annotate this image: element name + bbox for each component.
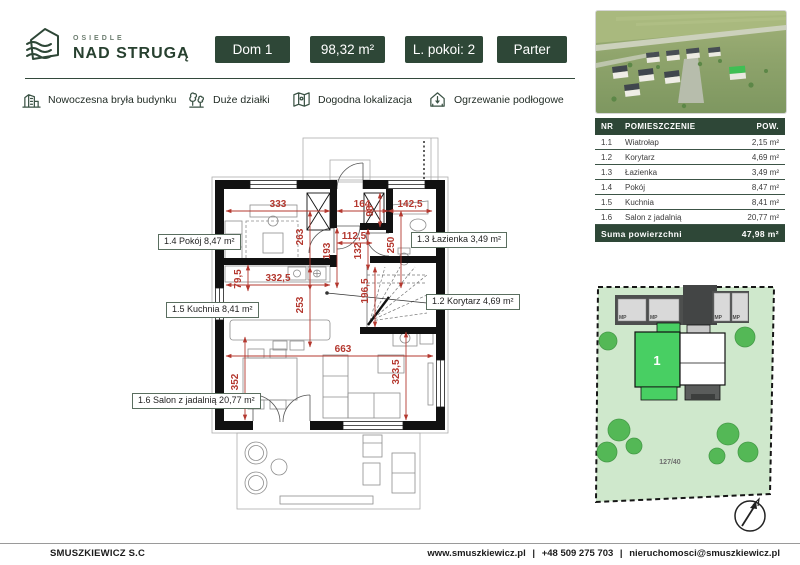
- footer-separator: |: [620, 548, 623, 559]
- floor-heating-icon: [428, 90, 447, 109]
- compass-icon: [735, 499, 765, 531]
- table-row: 1.5 Kuchnia 8,41 m²: [595, 195, 785, 210]
- plot-number: 127/40: [659, 459, 681, 466]
- cell-nr: 1.2: [601, 153, 625, 162]
- cell-pow: 8,41 m²: [752, 198, 779, 207]
- logo-text: OSIEDLE NAD STRUGĄ: [73, 35, 190, 63]
- house-number: 1: [653, 353, 660, 368]
- cell-pow: 3,49 m²: [752, 168, 779, 177]
- footer-phone-link[interactable]: +48 509 275 703: [542, 548, 614, 559]
- footer-company: SMUSZKIEWICZ S.C: [50, 548, 145, 559]
- cell-nr: 1.4: [601, 183, 625, 192]
- table-row: 1.6 Salon z jadalnią 20,77 m²: [595, 210, 785, 225]
- table-row: 1.3 Łazienka 3,49 m²: [595, 165, 785, 180]
- cell-name: Kuchnia: [625, 198, 752, 207]
- cell-name: Pokój: [625, 183, 752, 192]
- dim-label: 352: [230, 373, 241, 390]
- feature-label: Ogrzewanie podłogowe: [454, 94, 564, 106]
- aerial-photo-render: [596, 11, 786, 113]
- rooms-table-summary: Suma powierzchni 47,98 m²: [595, 225, 785, 242]
- feature-label: Nowoczesna bryła budynku: [48, 94, 176, 106]
- dim-label: 193: [322, 242, 333, 259]
- footer-email-link[interactable]: nieruchomosci@smuszkiewicz.pl: [629, 548, 780, 559]
- dim-label: 253: [295, 296, 306, 313]
- feature-label: Duże działki: [213, 94, 270, 106]
- cell-name: Wiatrołap: [625, 138, 752, 147]
- dim-label: 98: [365, 205, 376, 217]
- trees-icon: [187, 90, 206, 109]
- badge-room-count[interactable]: L. pokoi: 2: [405, 36, 483, 63]
- cell-nr: 1.3: [601, 168, 625, 177]
- col-pow: POW.: [757, 122, 780, 131]
- feature-large-plots: Duże działki: [187, 90, 270, 109]
- building-icon: [22, 90, 41, 109]
- feature-floor-heating: Ogrzewanie podłogowe: [428, 90, 564, 109]
- parking-label: MP: [733, 315, 741, 321]
- rooms-table: NR POMIESZCZENIE POW. 1.1 Wiatrołap 2,15…: [595, 118, 785, 242]
- aerial-photo: [595, 10, 787, 114]
- feature-label: Dogodna lokalizacja: [318, 94, 412, 106]
- footer-website-link[interactable]: www.smuszkiewicz.pl: [427, 548, 525, 559]
- room-label-lazienka: 1.3 Łazienka 3,49 m²: [411, 232, 507, 248]
- dim-label: 332,5: [265, 273, 290, 284]
- dim-label: 250: [386, 236, 397, 253]
- logo-subtitle: OSIEDLE: [73, 35, 190, 42]
- highlighted-house: [729, 66, 746, 80]
- header-divider: [25, 78, 575, 79]
- footer-divider: [0, 543, 800, 544]
- rooms-table-header: NR POMIESZCZENIE POW.: [595, 118, 785, 135]
- dim-label: 112,5: [342, 231, 367, 242]
- table-row: 1.1 Wiatrołap 2,15 m²: [595, 135, 785, 150]
- dim-label: 142,5: [397, 199, 422, 210]
- table-row: 1.2 Korytarz 4,69 m²: [595, 150, 785, 165]
- room-label-pokoj: 1.4 Pokój 8,47 m²: [158, 234, 241, 250]
- dim-label: 263: [295, 228, 306, 245]
- summary-value: 47,98 m²: [742, 229, 779, 239]
- cell-name: Korytarz: [625, 153, 752, 162]
- dim-label: 323,5: [391, 359, 402, 384]
- cell-nr: 1.5: [601, 198, 625, 207]
- cell-pow: 8,47 m²: [752, 183, 779, 192]
- dim-label: 196,5: [360, 278, 371, 303]
- cell-pow: 4,69 m²: [752, 153, 779, 162]
- badge-house-number[interactable]: Dom 1: [215, 36, 290, 63]
- footer-contacts: www.smuszkiewicz.pl | +48 509 275 703 | …: [425, 548, 782, 559]
- parking-label: MP: [650, 315, 658, 321]
- cell-pow: 2,15 m²: [752, 138, 779, 147]
- feature-location: Dogodna lokalizacja: [292, 90, 412, 109]
- dim-label: 663: [335, 344, 352, 355]
- nad-struga-logo-icon[interactable]: [24, 26, 64, 64]
- cell-name: Salon z jadalnią: [625, 213, 747, 222]
- stairs: [367, 267, 427, 327]
- dim-label: 79,5: [233, 269, 244, 289]
- col-nr: NR: [601, 122, 625, 131]
- parking-label: MP: [619, 315, 627, 321]
- cell-nr: 1.6: [601, 213, 625, 222]
- site-plan: MP MP MP MP 1 127/40: [595, 283, 785, 533]
- cell-pow: 20,77 m²: [747, 213, 779, 222]
- col-name: POMIESZCZENIE: [625, 122, 757, 131]
- logo-title: NAD STRUGĄ: [73, 45, 190, 63]
- site-plan-drawing: MP MP MP MP 1 127/40: [595, 283, 785, 533]
- floor-plan: 333 164 142,5 263 98 112,5 193 132 250 3…: [130, 115, 590, 543]
- table-row: 1.4 Pokój 8,47 m²: [595, 180, 785, 195]
- parking-label: MP: [715, 315, 723, 321]
- footer-separator: |: [532, 548, 535, 559]
- label-leader: [325, 291, 427, 303]
- badge-floor[interactable]: Parter: [497, 36, 567, 63]
- badge-total-area[interactable]: 98,32 m²: [310, 36, 385, 63]
- feature-modern-building: Nowoczesna bryła budynku: [22, 90, 176, 109]
- dim-label: 132: [353, 242, 364, 259]
- summary-label: Suma powierzchni: [601, 229, 742, 239]
- floor-plan-drawing: 333 164 142,5 263 98 112,5 193 132 250 3…: [130, 115, 590, 543]
- dim-label: 333: [270, 199, 287, 210]
- cell-name: Łazienka: [625, 168, 752, 177]
- cell-nr: 1.1: [601, 138, 625, 147]
- room-label-korytarz: 1.2 Korytarz 4,69 m²: [426, 294, 520, 310]
- room-label-salon: 1.6 Salon z jadalnią 20,77 m²: [132, 393, 261, 409]
- room-label-kuchnia: 1.5 Kuchnia 8,41 m²: [166, 302, 259, 318]
- map-icon: [292, 90, 311, 109]
